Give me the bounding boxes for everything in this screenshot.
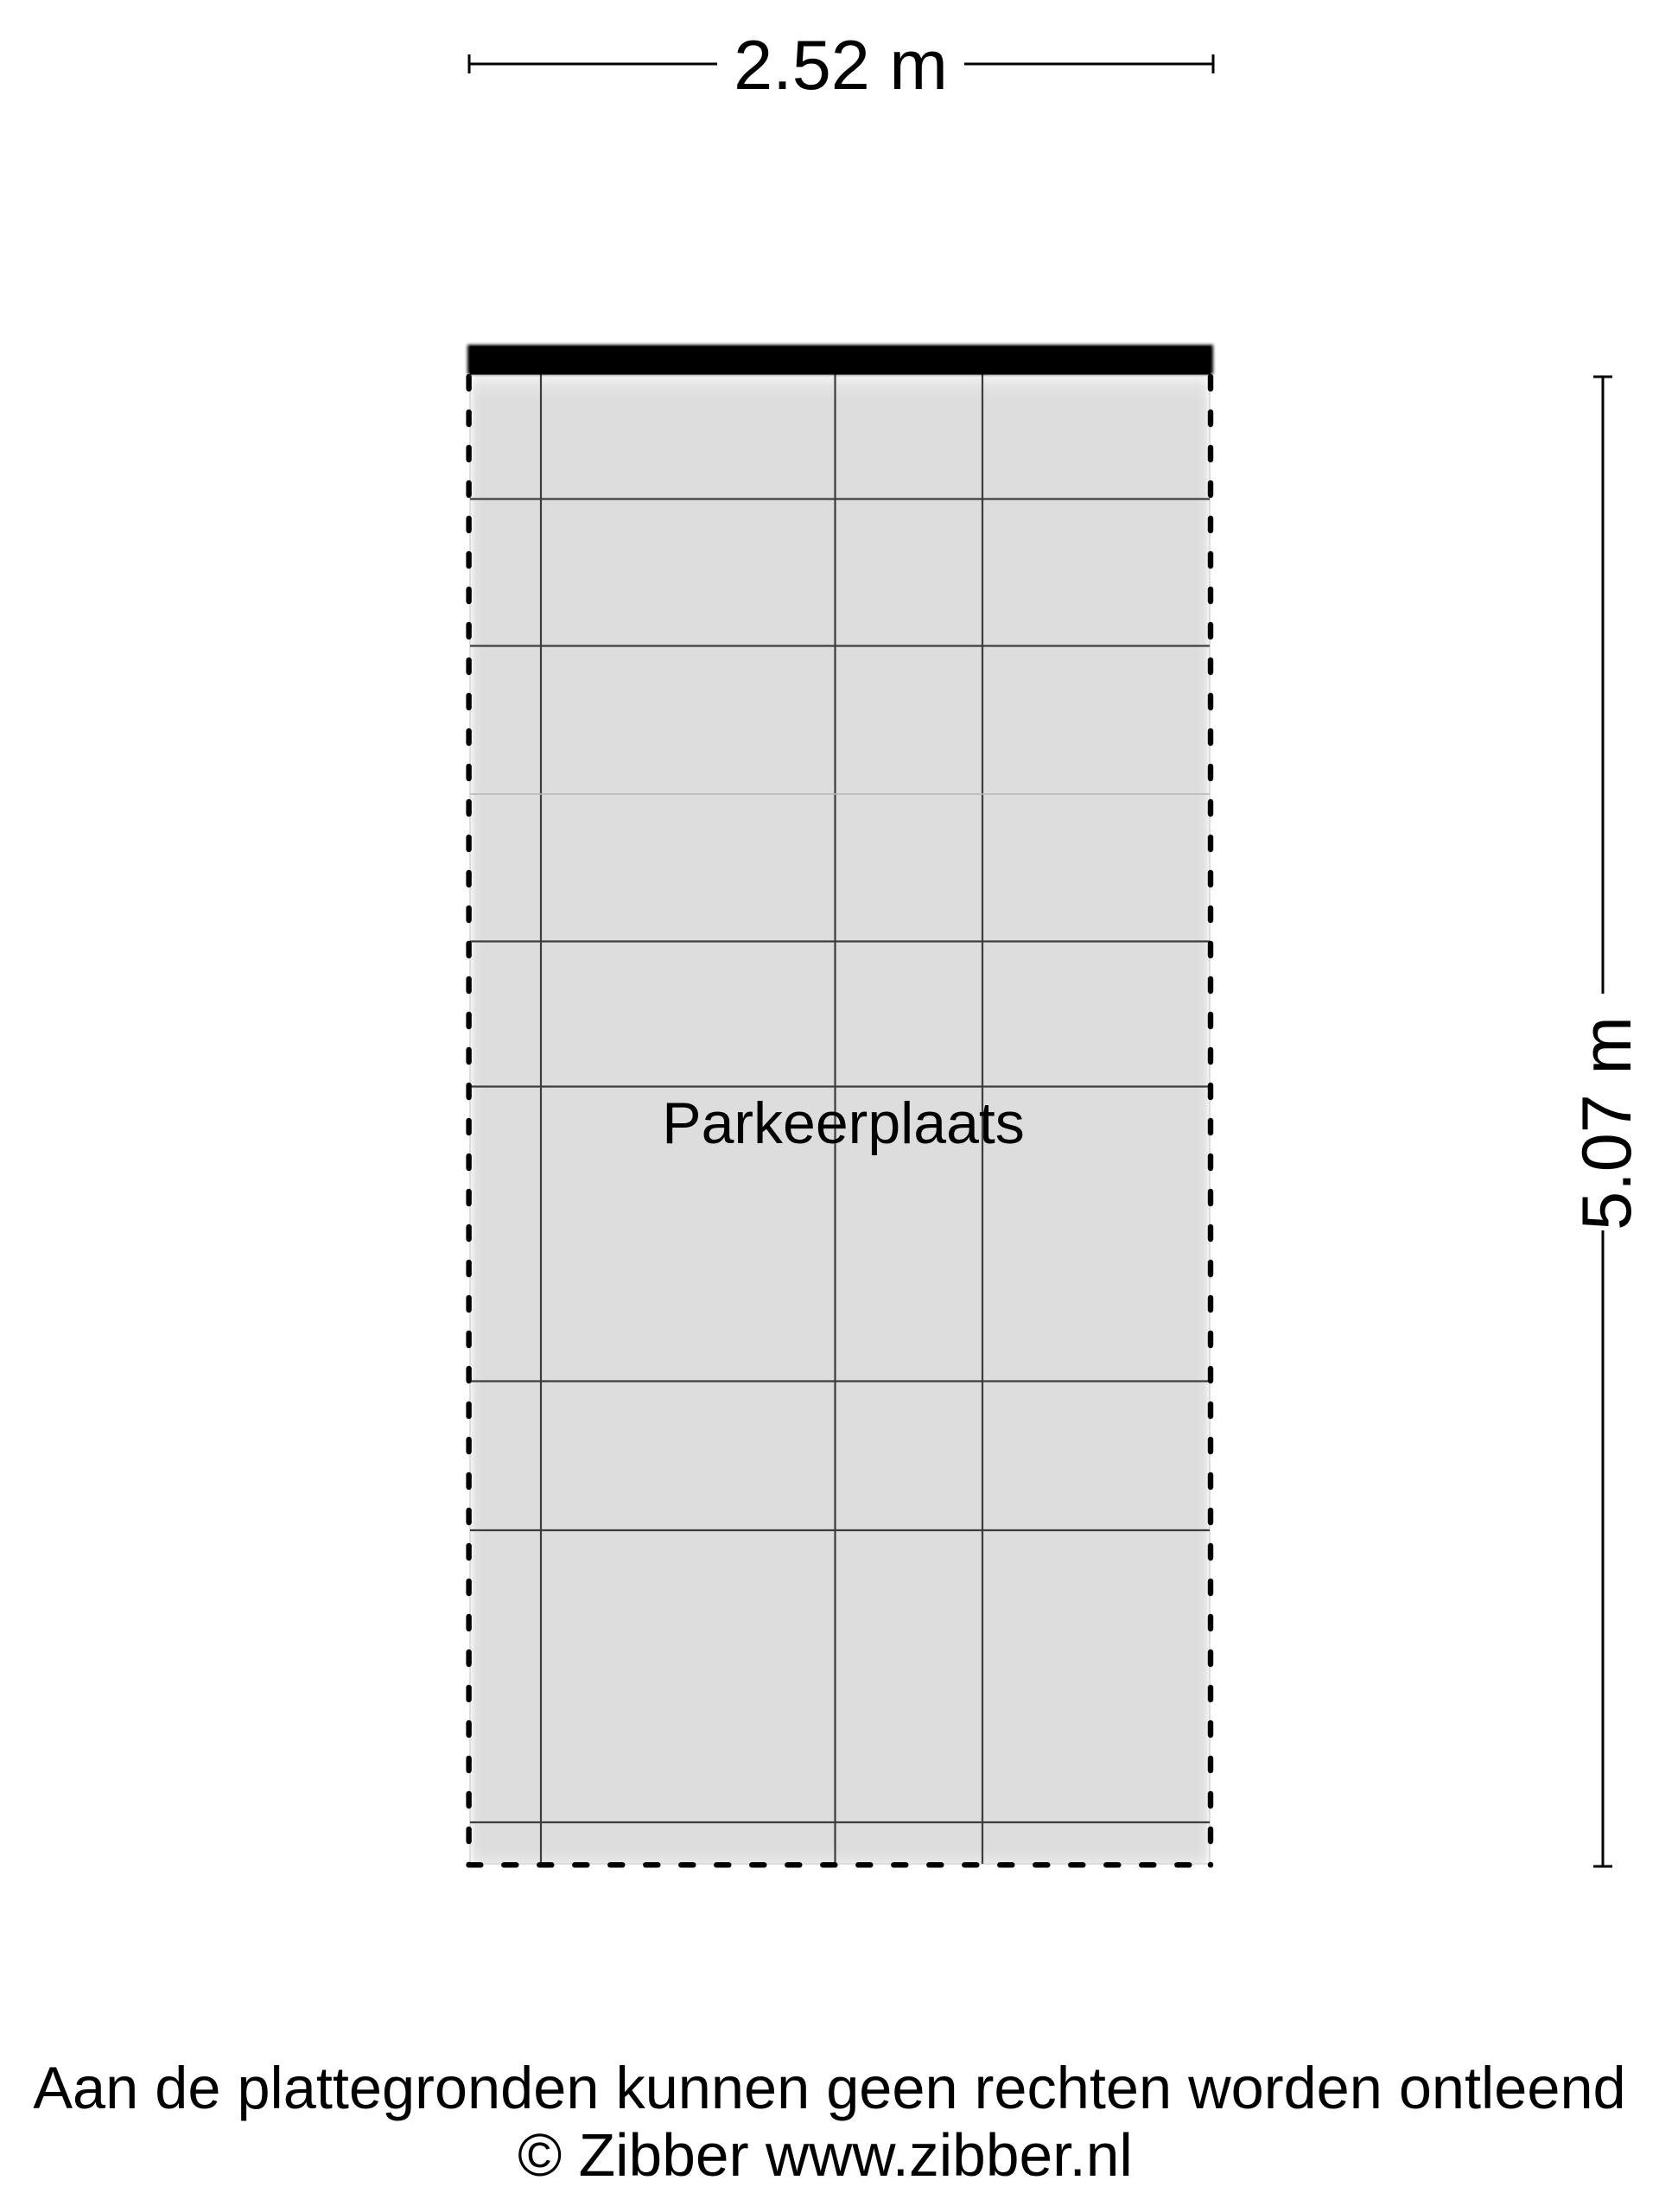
- svg-text:5.07 m: 5.07 m: [1568, 1016, 1646, 1230]
- svg-text:Aan de plattegronden kunnen ge: Aan de plattegronden kunnen geen rechten…: [33, 2055, 1625, 2121]
- svg-text:Parkeerplaats: Parkeerplaats: [662, 1090, 1025, 1156]
- svg-text:© Zibber www.zibber.nl: © Zibber www.zibber.nl: [518, 2121, 1133, 2189]
- svg-text:2.52 m: 2.52 m: [734, 27, 948, 105]
